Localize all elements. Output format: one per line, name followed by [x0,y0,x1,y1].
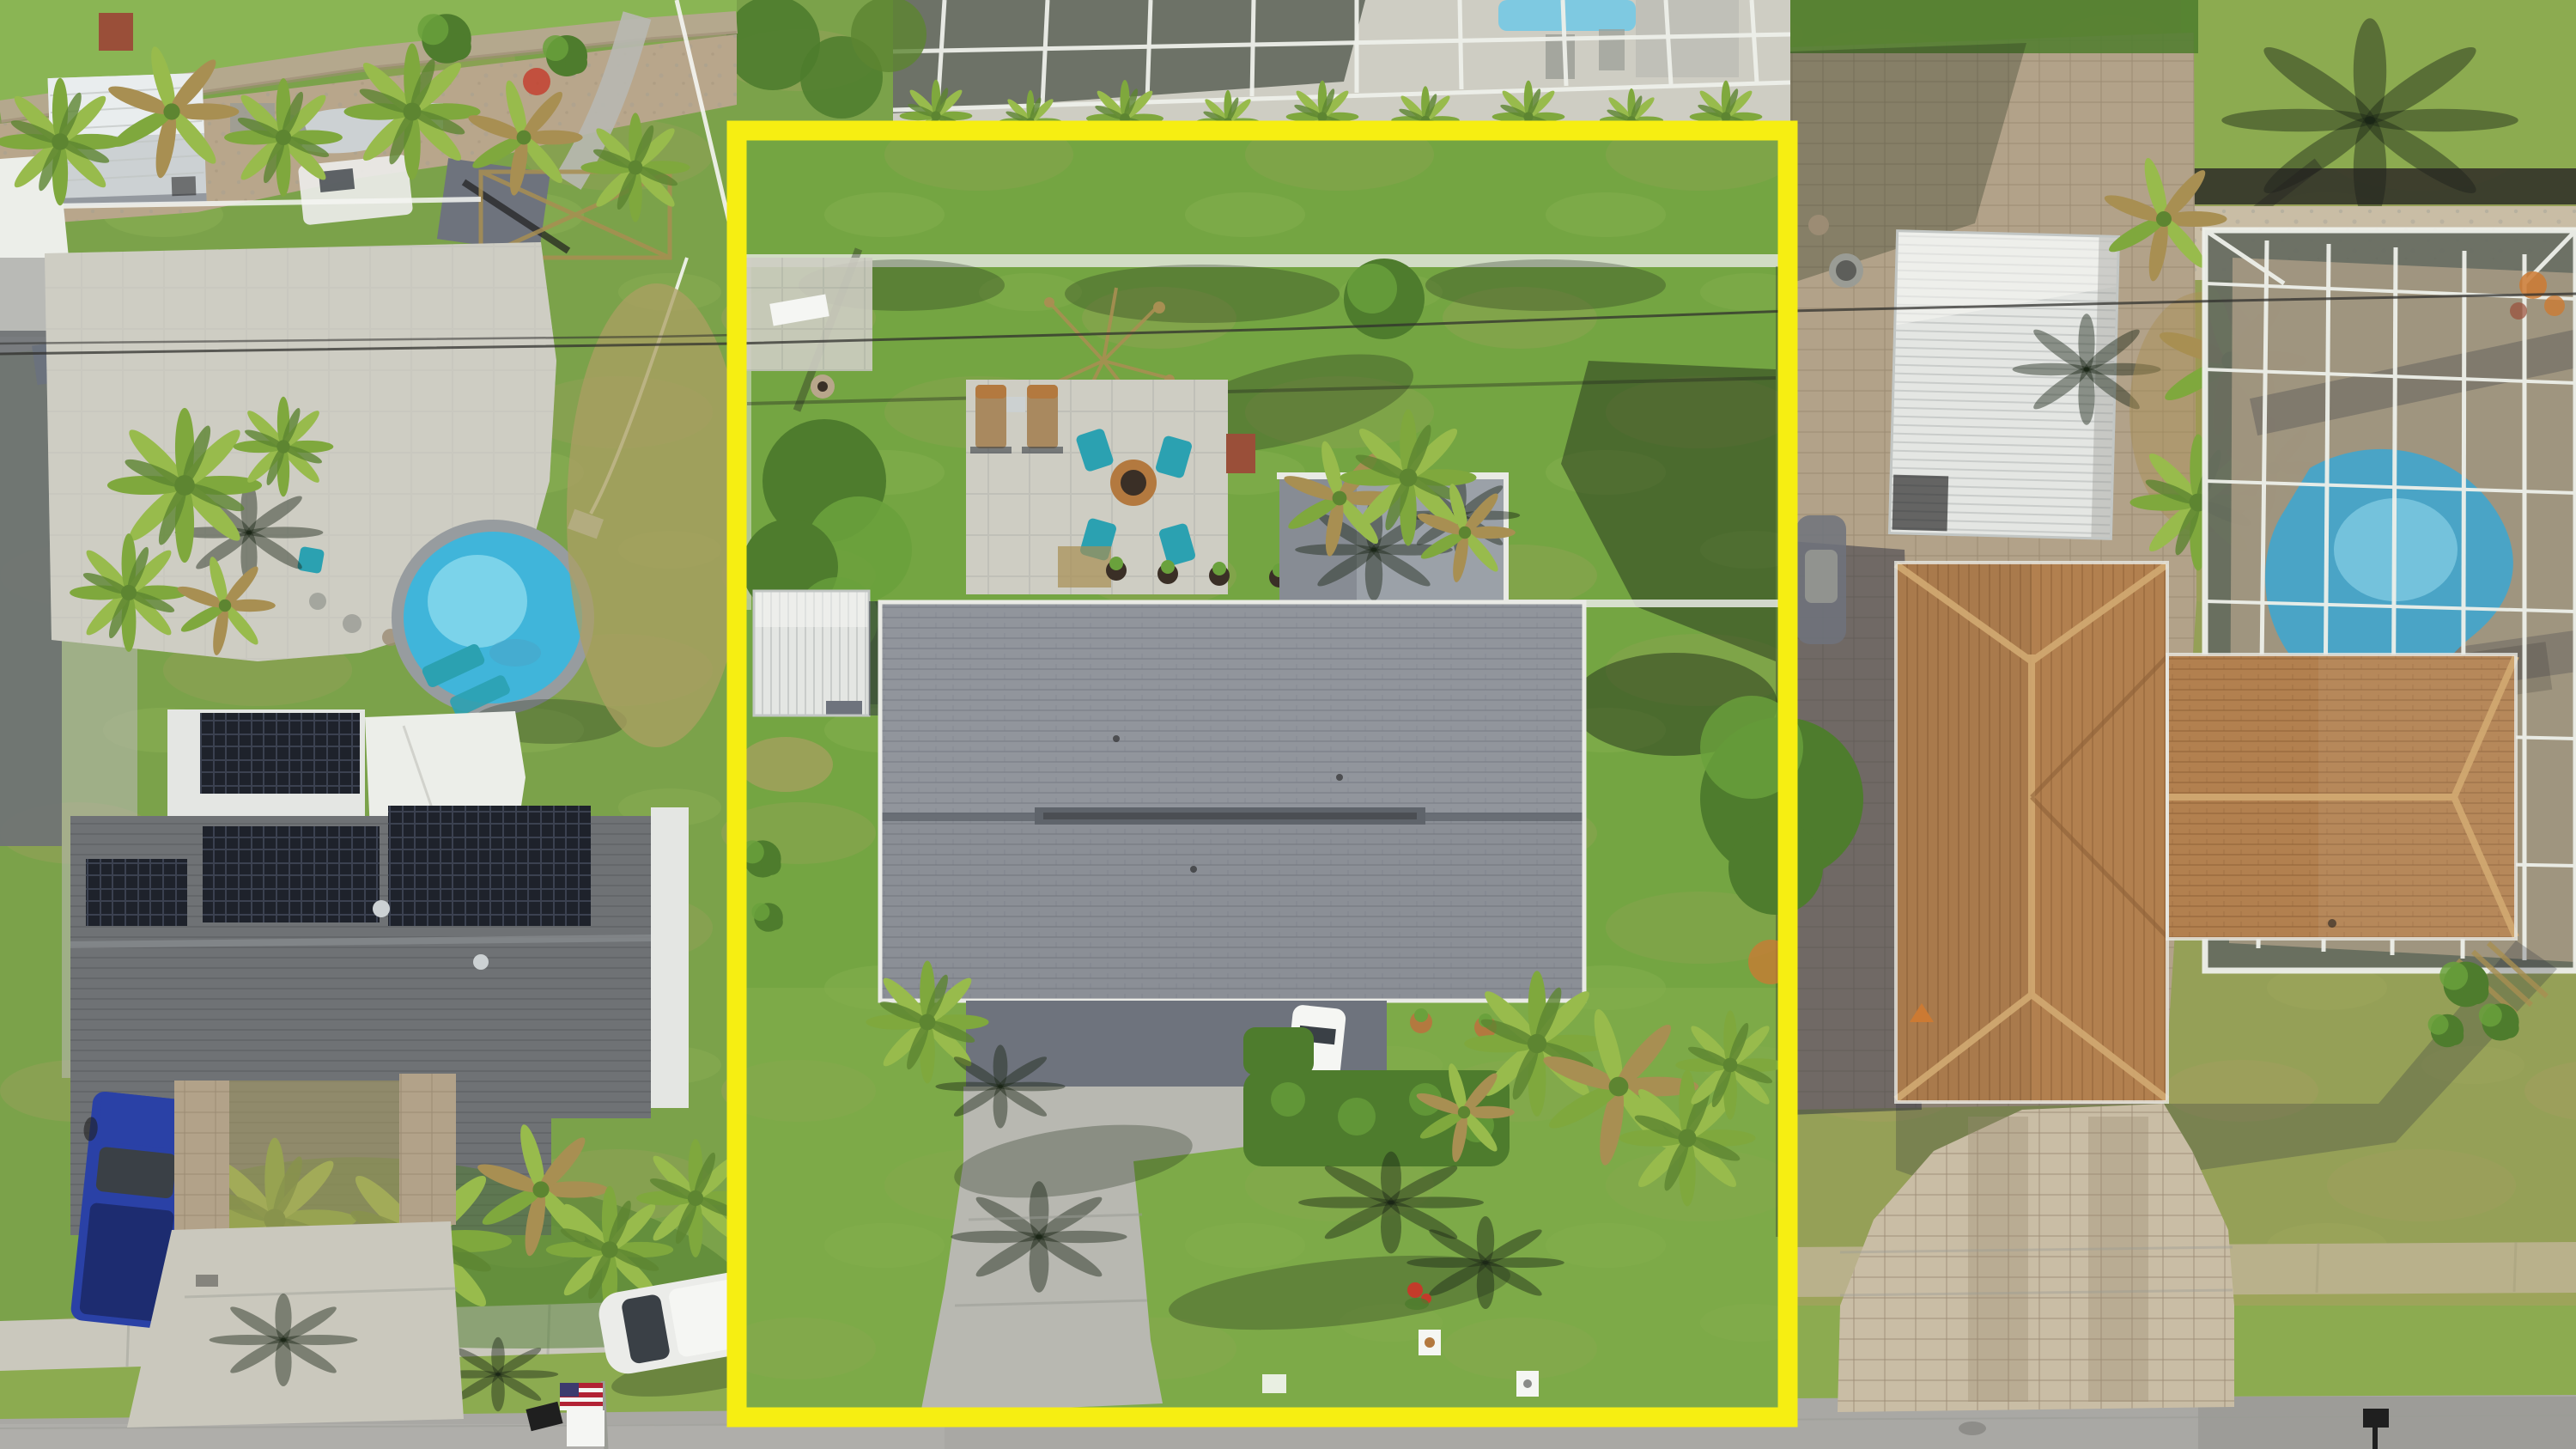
red-equipment [99,13,133,51]
solar-array-garage [200,713,360,794]
center-grass-strip [229,1081,399,1232]
neighbor-pool-sliver [1498,0,1636,31]
tire-track [2088,1117,2148,1402]
roof-dot [1190,866,1197,873]
hedge-block [1243,1027,1314,1075]
roof-dot [1336,774,1343,781]
dark-fence [2191,168,2576,204]
fire-pit-bowl [1121,470,1146,496]
shed-doorway [1893,475,1949,532]
rear-patio [966,380,1228,594]
roof-dot [1113,735,1120,742]
red-flowers [1407,1282,1423,1298]
glass-table [1006,397,1025,412]
barrel-top [1836,260,1856,281]
subject-property [737,131,1863,1419]
solar-array-right [388,806,591,926]
parked-dark-car [1796,515,1846,644]
wood-platform [1058,546,1111,588]
main-house-roof [880,602,1584,1001]
american-flag [560,1383,603,1410]
palm-shadow [951,1181,1127,1293]
tan-lounger [970,385,1012,454]
aerial-photo [0,0,2576,1449]
red-shrub [523,68,550,95]
white-mailbox [567,1410,605,1446]
utility-pad [1516,1371,1539,1397]
palm-shadow [210,1294,358,1386]
manhole [1959,1422,1986,1435]
roof-vent [373,900,390,917]
roof-vent [2328,919,2336,928]
dry-strip [567,283,747,747]
teal-chair [297,546,325,574]
paver-strip [174,1081,229,1232]
tan-lounger [1022,385,1063,454]
white-shed [754,591,882,715]
left-driveway-pad [127,1221,464,1428]
solar-array-left [86,859,187,926]
roof-vent [473,954,489,970]
lanai-chair [1599,29,1625,70]
right-property [1790,0,2576,1449]
barrel [1808,215,1829,235]
brick-grill [1226,434,1255,473]
white-rv-strip [651,807,689,1108]
solar-array-mid [203,826,380,922]
pad-item [196,1275,218,1287]
curb-marker [1262,1374,1286,1393]
paver-strip [399,1074,456,1225]
utility-pad [1419,1330,1441,1355]
canopy-shade [0,258,50,337]
planter-center [817,381,828,392]
windshield [95,1147,177,1199]
tire-track [1968,1117,2028,1402]
doorway [172,176,197,196]
